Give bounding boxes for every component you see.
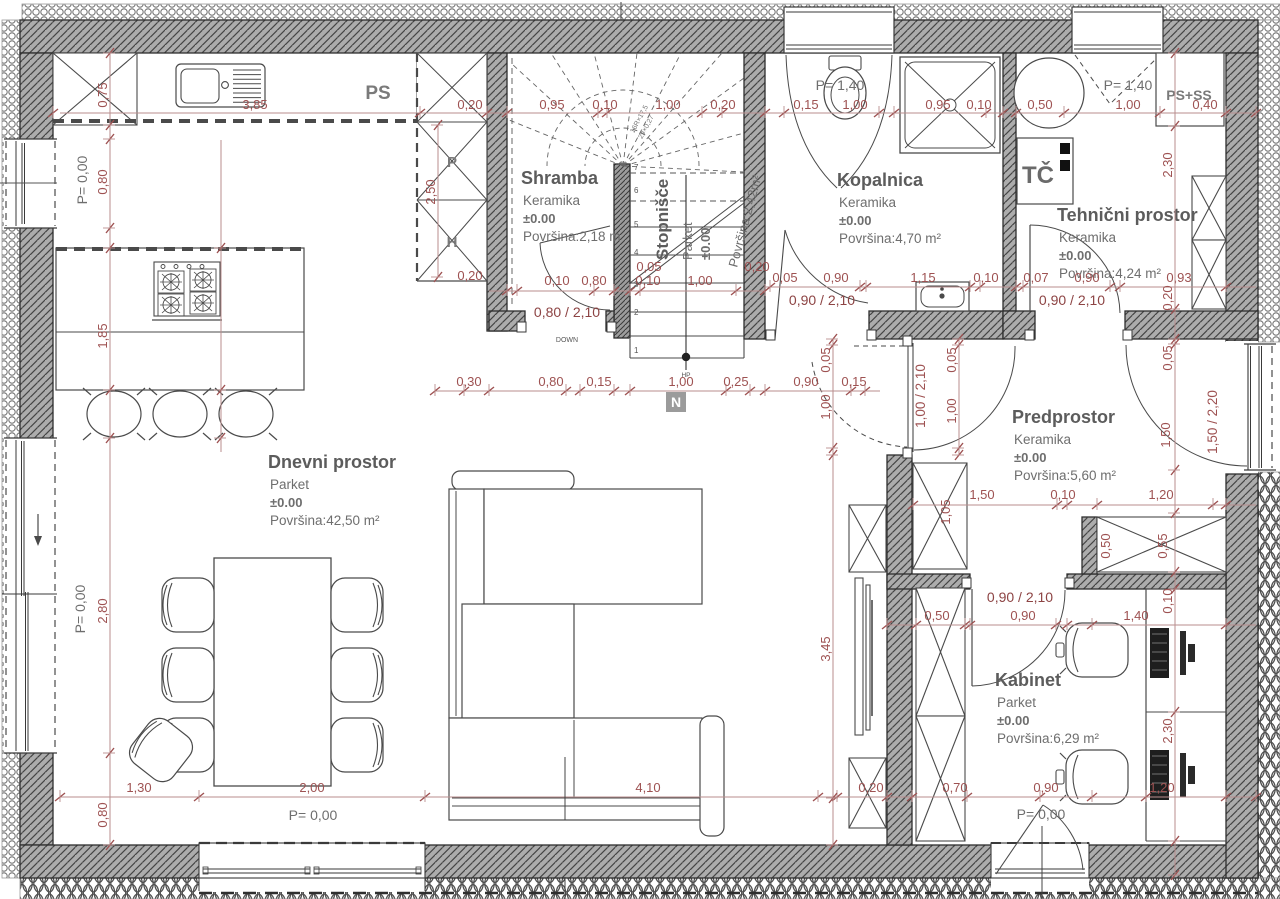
svg-text:1,40: 1,40	[1123, 608, 1148, 623]
svg-text:0,20: 0,20	[457, 268, 482, 283]
svg-text:Shramba: Shramba	[521, 168, 599, 188]
svg-text:1,50: 1,50	[969, 487, 994, 502]
svg-text:±0.00: ±0.00	[1014, 450, 1046, 465]
svg-text:0,90 / 2,10: 0,90 / 2,10	[987, 589, 1053, 605]
svg-text:1,20: 1,20	[1148, 487, 1173, 502]
svg-text:0,50: 0,50	[1098, 533, 1113, 558]
svg-text:1,50 / 2,20: 1,50 / 2,20	[1205, 390, 1220, 454]
svg-text:1,00: 1,00	[842, 97, 867, 112]
svg-text:0,25: 0,25	[723, 374, 748, 389]
svg-text:±0.00: ±0.00	[698, 228, 713, 260]
svg-text:2,00: 2,00	[299, 780, 324, 795]
svg-text:5: 5	[634, 220, 639, 229]
svg-text:1,30: 1,30	[126, 780, 151, 795]
svg-text:0,10: 0,10	[1050, 487, 1075, 502]
svg-text:0,30: 0,30	[456, 374, 481, 389]
svg-text:0,10: 0,10	[592, 97, 617, 112]
svg-text:0,93: 0,93	[1166, 270, 1191, 285]
svg-text:0,10: 0,10	[973, 270, 998, 285]
svg-text:Tehnični prostor: Tehnični prostor	[1057, 205, 1198, 225]
svg-text:P= 0,00: P= 0,00	[72, 584, 88, 633]
svg-text:0,70: 0,70	[942, 780, 967, 795]
svg-text:0,90: 0,90	[1033, 780, 1058, 795]
svg-text:1,00: 1,00	[818, 394, 833, 419]
svg-text:0,90: 0,90	[1074, 270, 1099, 285]
svg-text:Površina:2,18 m: Površina:2,18 m	[523, 229, 621, 244]
svg-text:0,90 / 2,10: 0,90 / 2,10	[1039, 292, 1105, 308]
svg-text:P= 1,40: P= 1,40	[816, 77, 865, 93]
svg-text:Keramika: Keramika	[1059, 230, 1117, 245]
svg-text:1,50: 1,50	[1158, 422, 1173, 447]
svg-text:Površina:4,70 m²: Površina:4,70 m²	[839, 231, 942, 246]
svg-text:0,15: 0,15	[793, 97, 818, 112]
svg-text:0,05: 0,05	[772, 270, 797, 285]
svg-text:0,50: 0,50	[1027, 97, 1052, 112]
svg-text:0,90: 0,90	[793, 374, 818, 389]
svg-text:0,10: 0,10	[635, 273, 660, 288]
svg-text:0,80 / 2,10: 0,80 / 2,10	[534, 304, 600, 320]
svg-text:Površina:5,60 m²: Površina:5,60 m²	[1014, 468, 1117, 483]
svg-text:0,50: 0,50	[924, 608, 949, 623]
svg-text:0,05: 0,05	[1160, 345, 1175, 370]
svg-text:0,40: 0,40	[1192, 97, 1217, 112]
svg-text:1,05: 1,05	[938, 499, 953, 524]
svg-text:2,50: 2,50	[423, 179, 438, 204]
svg-text:P= 0,00: P= 0,00	[1017, 806, 1066, 822]
svg-text:TČ: TČ	[1022, 161, 1054, 189]
svg-text:0,20: 0,20	[858, 780, 883, 795]
svg-text:2,80: 2,80	[95, 598, 110, 623]
svg-text:PS: PS	[365, 83, 390, 104]
svg-text:Dnevni prostor: Dnevni prostor	[268, 452, 396, 472]
svg-text:Kopalnica: Kopalnica	[837, 170, 924, 190]
svg-text:2,30: 2,30	[1160, 152, 1175, 177]
svg-text:Predprostor: Predprostor	[1012, 407, 1115, 427]
svg-text:1,00: 1,00	[1115, 97, 1140, 112]
svg-text:±0.00: ±0.00	[1059, 248, 1091, 263]
svg-text:2: 2	[634, 308, 639, 317]
svg-text:7: 7	[634, 163, 639, 172]
svg-text:3,85: 3,85	[242, 97, 267, 112]
svg-text:0,10: 0,10	[966, 97, 991, 112]
svg-text:±0.00: ±0.00	[270, 495, 302, 510]
svg-text:0,55: 0,55	[1155, 533, 1170, 558]
svg-text:±0.00: ±0.00	[523, 211, 555, 226]
svg-text:0,05: 0,05	[818, 347, 833, 372]
svg-text:P= 0,00: P= 0,00	[74, 155, 90, 204]
svg-text:0,07: 0,07	[1023, 270, 1048, 285]
svg-text:Površina:42,50 m²: Površina:42,50 m²	[270, 513, 380, 528]
svg-text:6: 6	[634, 186, 639, 195]
svg-text:0,80: 0,80	[95, 802, 110, 827]
svg-text:0,15: 0,15	[841, 374, 866, 389]
svg-text:Parket: Parket	[997, 695, 1036, 710]
svg-text:0,90: 0,90	[1010, 608, 1035, 623]
svg-text:1,85: 1,85	[95, 323, 110, 348]
svg-text:1,15: 1,15	[910, 270, 935, 285]
svg-text:0,05: 0,05	[944, 347, 959, 372]
svg-text:N: N	[671, 394, 681, 410]
svg-text:1,00: 1,00	[668, 374, 693, 389]
svg-text:±0.00: ±0.00	[839, 213, 871, 228]
svg-text:Keramika: Keramika	[523, 193, 581, 208]
svg-text:1,20: 1,20	[1149, 780, 1174, 795]
svg-text:±0.00: ±0.00	[997, 713, 1029, 728]
svg-text:Parket: Parket	[270, 477, 309, 492]
svg-text:0,90 / 2,10: 0,90 / 2,10	[789, 292, 855, 308]
svg-text:0,20: 0,20	[457, 97, 482, 112]
svg-text:Kabinet: Kabinet	[995, 670, 1061, 690]
svg-text:0,95: 0,95	[925, 97, 950, 112]
svg-text:Keramika: Keramika	[1014, 432, 1072, 447]
svg-text:0,80: 0,80	[538, 374, 563, 389]
svg-text:0,20: 0,20	[710, 97, 735, 112]
svg-text:P= 0,00: P= 0,00	[289, 807, 338, 823]
svg-text:3,45: 3,45	[818, 636, 833, 661]
svg-text:Stopnišče: Stopnišče	[653, 179, 672, 260]
svg-text:0,80: 0,80	[581, 273, 606, 288]
svg-text:DOWN: DOWN	[556, 337, 578, 344]
svg-text:0,20: 0,20	[744, 259, 769, 274]
svg-text:Keramika: Keramika	[839, 195, 897, 210]
svg-text:Parket: Parket	[680, 222, 695, 260]
svg-text:0,10: 0,10	[544, 273, 569, 288]
svg-text:1,00: 1,00	[944, 398, 959, 423]
svg-text:1,00: 1,00	[687, 273, 712, 288]
svg-text:P= 1,40: P= 1,40	[1104, 77, 1153, 93]
svg-text:0,05: 0,05	[636, 259, 661, 274]
svg-text:1,00 / 2,10: 1,00 / 2,10	[913, 364, 928, 428]
svg-text:Površina:6,29 m²: Površina:6,29 m²	[997, 731, 1100, 746]
svg-text:0,15: 0,15	[586, 374, 611, 389]
svg-text:1,00: 1,00	[655, 97, 680, 112]
svg-text:0,20: 0,20	[1160, 285, 1175, 310]
svg-text:2,30: 2,30	[1160, 718, 1175, 743]
svg-text:4,10: 4,10	[635, 780, 660, 795]
svg-text:0,75: 0,75	[95, 82, 110, 107]
svg-text:1: 1	[634, 346, 639, 355]
svg-text:0,90: 0,90	[823, 270, 848, 285]
svg-text:P: P	[447, 154, 457, 171]
svg-text:0,80: 0,80	[95, 169, 110, 194]
svg-text:H: H	[447, 234, 458, 251]
svg-text:0,10: 0,10	[1160, 588, 1175, 613]
svg-text:4: 4	[634, 248, 639, 257]
svg-text:0,95: 0,95	[539, 97, 564, 112]
